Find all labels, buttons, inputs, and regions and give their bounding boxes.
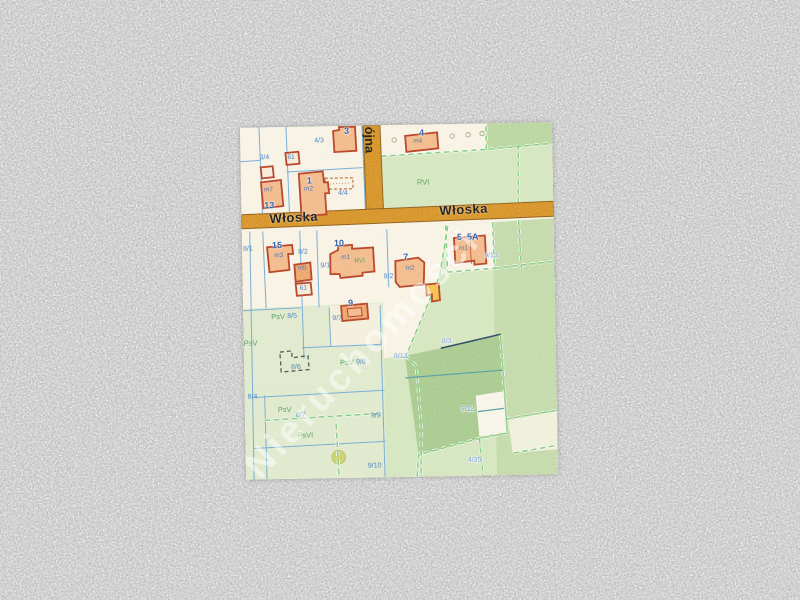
address-label: 4	[419, 129, 424, 138]
building-label: m4	[413, 139, 422, 146]
building-small-left	[261, 166, 274, 178]
parcel-label: 4/3	[314, 137, 324, 144]
parcel-label: 9/13	[484, 252, 498, 259]
parcel-label: 9/1	[320, 262, 330, 269]
class-label-psv-2: PsV	[244, 339, 258, 347]
building-label: m5	[297, 266, 306, 273]
address-label: 1	[307, 177, 312, 186]
scanned-map-screenshot: Włoska Włoska ójna RVI RVI PsV PsV PsV P…	[0, 0, 800, 600]
street-label-vertical: ójna	[363, 126, 376, 153]
parcel-label: 3/4	[259, 154, 269, 161]
building-label: 61	[287, 155, 294, 162]
address-label: 15	[272, 241, 282, 250]
parcel-label: 8/6	[291, 364, 301, 371]
parcel-label: 8/2	[298, 249, 308, 256]
building-label: m3	[274, 253, 283, 260]
parcel-label: 4/4	[338, 190, 348, 197]
parcel-label: 9/2	[384, 273, 394, 280]
parcel-label: 9/10	[368, 462, 382, 469]
parcel-label: 9/12	[461, 406, 475, 413]
building-label: m2	[304, 186, 313, 193]
building-9-inner	[347, 308, 362, 317]
parcel-label: 4/35	[468, 457, 482, 464]
building-label: 61	[300, 286, 307, 293]
address-label: 9	[348, 299, 353, 308]
parcel-label: 9/9	[371, 412, 381, 419]
address-label: 10	[334, 239, 344, 248]
parcel-label: 9/7	[332, 315, 342, 322]
building-label: m1	[341, 255, 350, 262]
class-label-rvi-small: RVI	[354, 259, 365, 266]
address-label: 13	[264, 201, 274, 210]
parcel-label: 8/3	[442, 338, 452, 345]
parcel-label: 8/4	[248, 393, 258, 400]
street-label-wloska-left: Włoska	[269, 210, 318, 226]
parcel-label: 8/1	[243, 246, 253, 253]
parcel-label: 8/5	[287, 313, 297, 320]
cadastral-map: Włoska Włoska ójna RVI RVI PsV PsV PsV P…	[240, 122, 558, 479]
address-label: 7	[403, 253, 408, 262]
address-label: 3	[344, 127, 349, 136]
class-label-rvi: RVI	[417, 178, 430, 186]
class-label-psv-1: PsV	[271, 313, 285, 321]
building-label: m7	[264, 187, 273, 194]
street-label-wloska-right: Włoska	[439, 202, 488, 218]
parcel-label: 8/12	[394, 353, 408, 360]
